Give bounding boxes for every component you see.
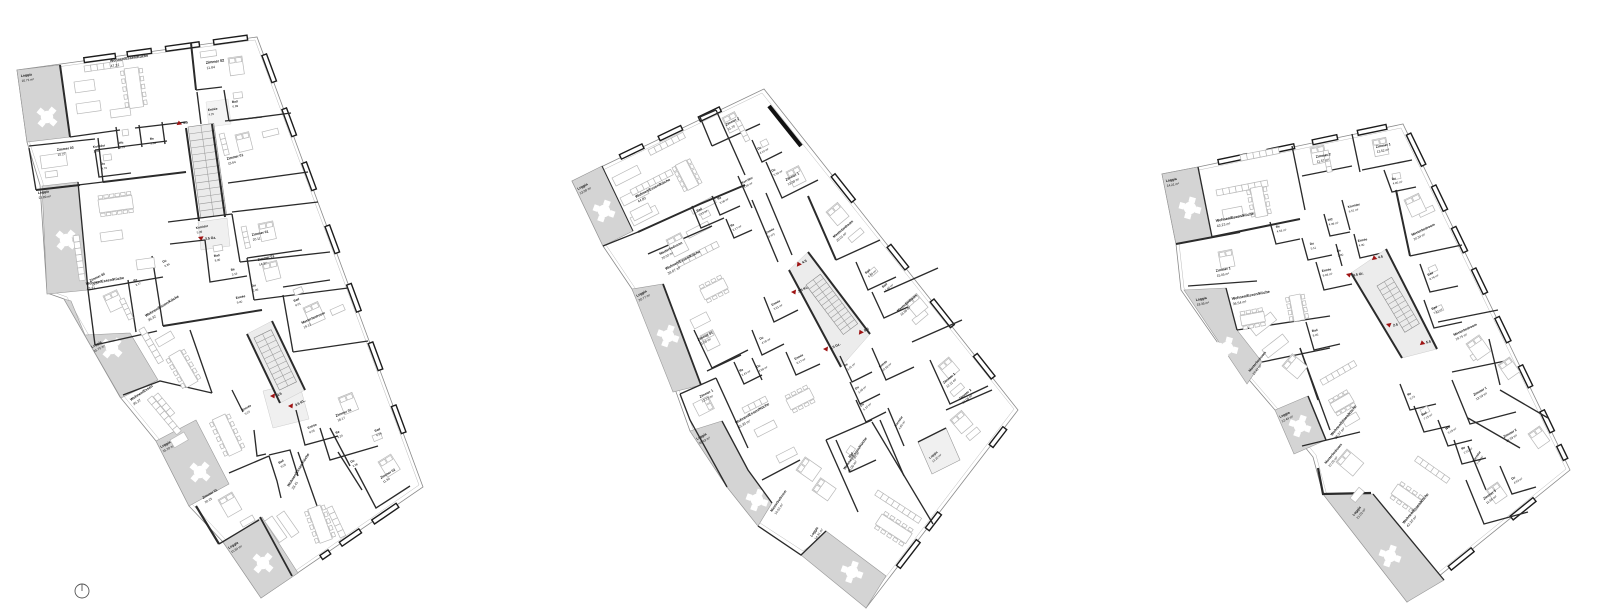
svg-text:4.25: 4.25 [208,112,215,117]
svg-text:2.31: 2.31 [119,145,126,150]
svg-text:1.93: 1.93 [93,149,100,154]
svg-text:4.5: 4.5 [183,120,188,125]
svg-text:4.76: 4.76 [101,166,108,171]
svg-text:6.99: 6.99 [232,104,239,109]
svg-text:2.54: 2.54 [150,141,157,146]
